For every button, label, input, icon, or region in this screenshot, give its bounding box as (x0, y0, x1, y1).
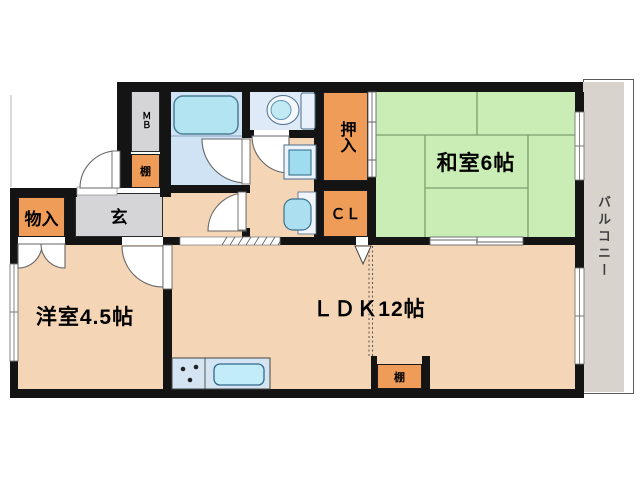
washing-machine (284, 145, 316, 179)
entrance-door-arc (80, 151, 117, 188)
washitsu-label: 和室6帖 (437, 147, 516, 177)
ldk-label-box: ＬＤＫ12帖 (289, 294, 449, 322)
yoshitsu-label: 洋室4.5帖 (36, 301, 134, 331)
yoshitsu-label-box: 洋室4.5帖 (15, 302, 155, 330)
monoire-door-left-arc (18, 244, 42, 268)
yoshitsu-door-leaf (163, 245, 172, 289)
toilet-door-arc (252, 136, 289, 173)
toilet (267, 93, 315, 129)
window-washitsu-east (575, 112, 584, 180)
hall-ldk-opening (180, 237, 280, 245)
entrance-door-leaf (112, 151, 120, 188)
kitchen-counter (172, 358, 270, 389)
ldk-label: ＬＤＫ12帖 (312, 293, 425, 323)
plan-linework (0, 0, 640, 480)
washitsu-label-box: 和室6帖 (396, 148, 556, 176)
fusuma-oshiire (368, 92, 376, 177)
bath-door-leaf (242, 139, 250, 184)
wash-basin (284, 192, 316, 234)
yoshitsu-door-arc (122, 246, 163, 287)
washroom-door-leaf (238, 192, 246, 230)
monoire-door-right-arc (41, 244, 65, 268)
sliding-door-washitsu-ldk (430, 237, 523, 245)
kitchen-sink (214, 364, 264, 385)
window-ldk-east (575, 268, 584, 364)
bathtub (174, 96, 238, 134)
bath-door-arc (202, 139, 246, 183)
floorplan: 押入 ＣＬ 物入 玄 ＭＢ 棚 棚 バルコニー (0, 0, 640, 480)
